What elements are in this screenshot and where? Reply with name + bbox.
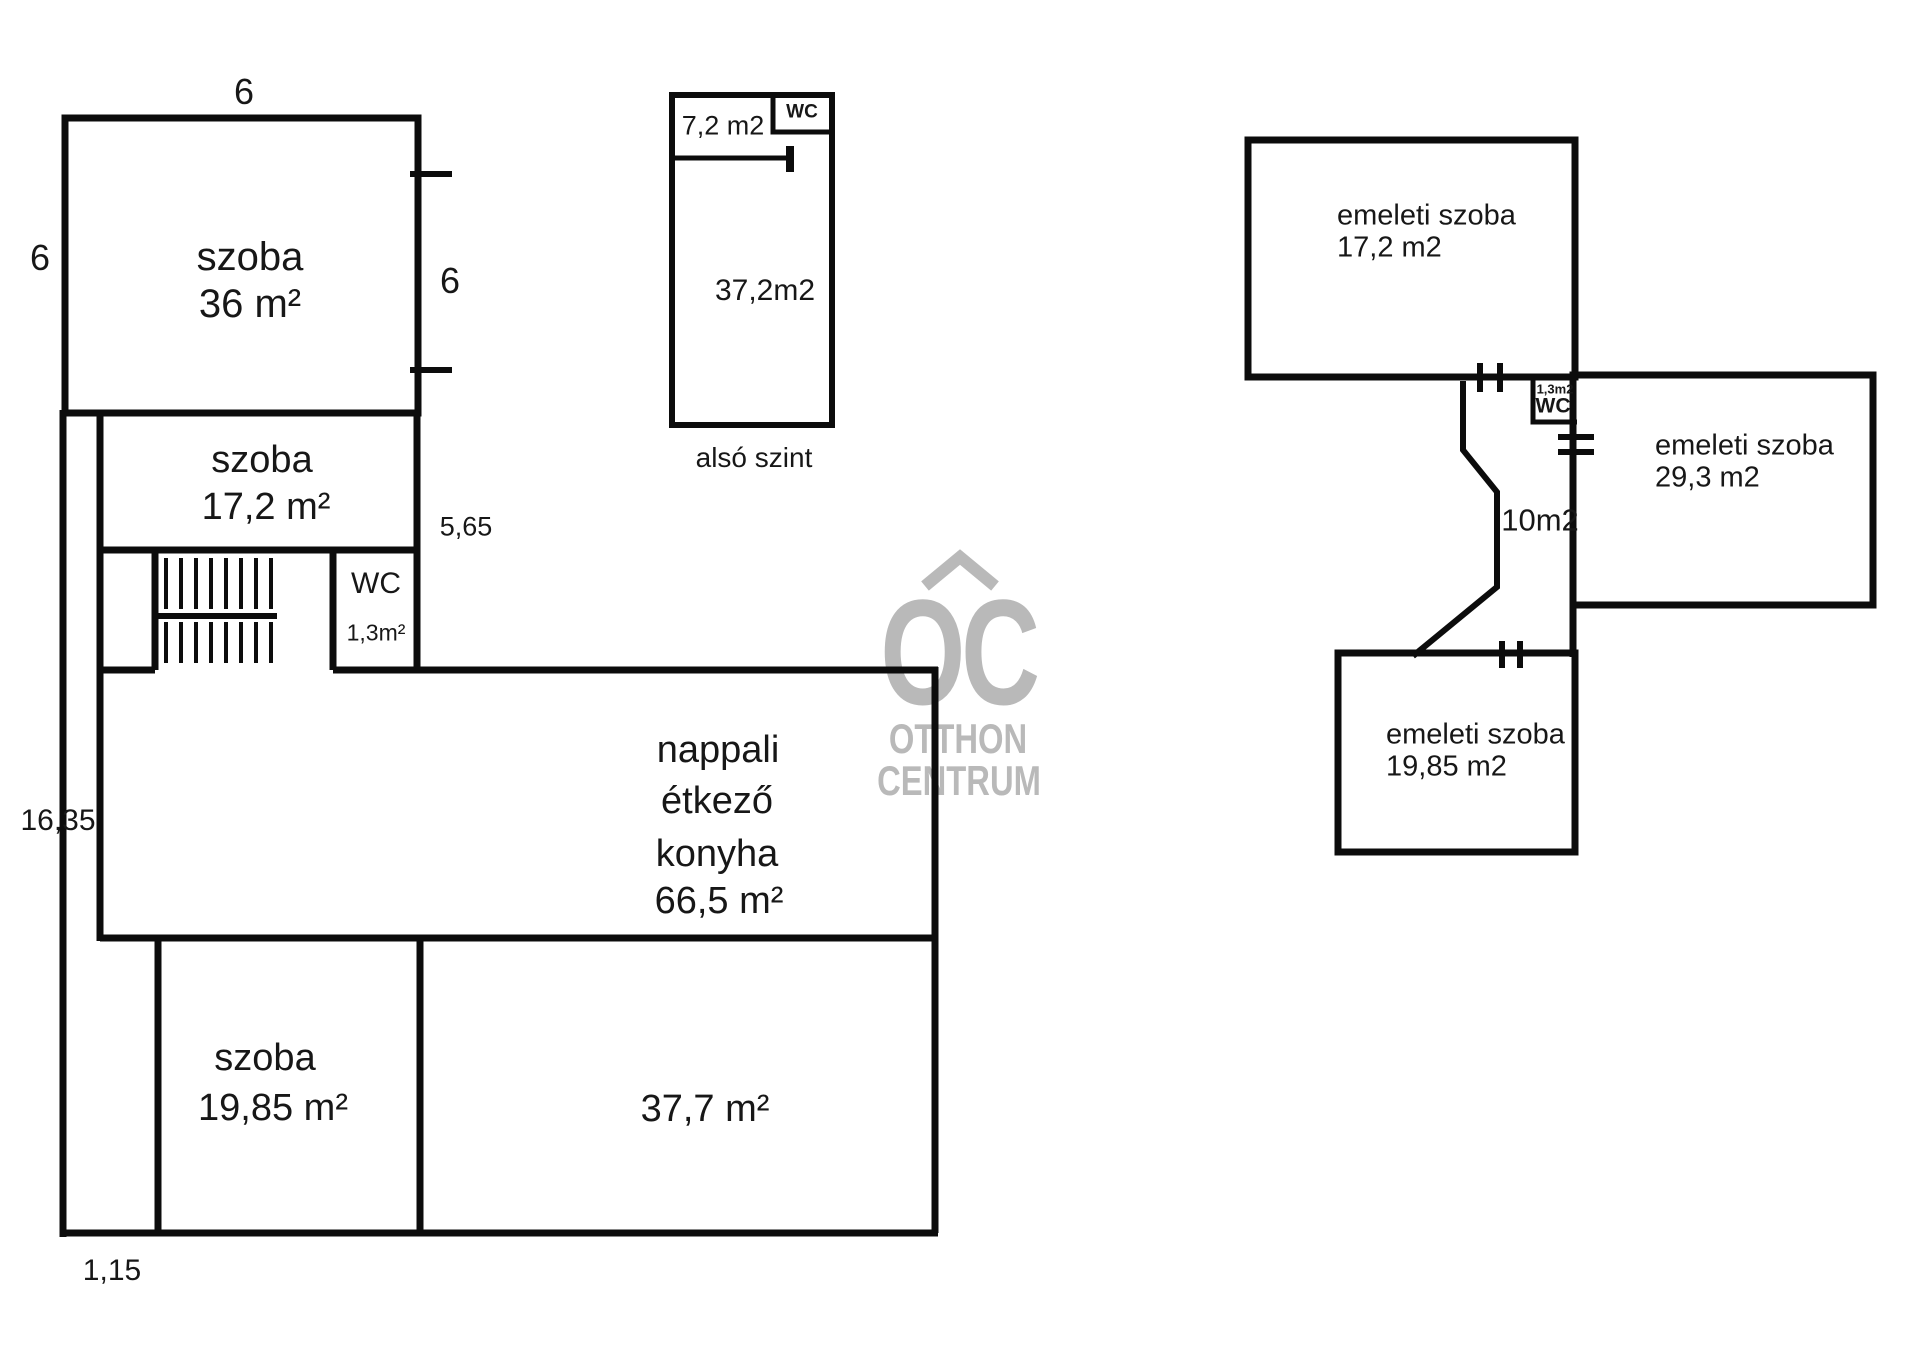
room-label-szoba17-area: 17,2 m² (202, 488, 331, 526)
room-label-szoba19-area: 19,85 m² (198, 1089, 348, 1127)
dimension-left: 6 (30, 240, 50, 276)
room-label-emeleti17-area: 17,2 m2 (1337, 234, 1442, 263)
floorplan-canvas: OC OTTHON CENTRUM (0, 0, 1920, 1348)
also-szint-caption: alsó szint (696, 444, 813, 472)
wall-corridor-left (1413, 381, 1497, 656)
dimension-top: 6 (234, 74, 254, 110)
room-label-emeleti17-name: emeleti szoba (1337, 202, 1516, 231)
room-label-emeleti-wc-name: WC (1536, 396, 1571, 417)
room-label-emeleti29-area: 29,3 m2 (1655, 464, 1760, 493)
room-label-37-area: 37,7 m² (641, 1090, 770, 1128)
room-label-emeleti19-area: 19,85 m2 (1386, 753, 1507, 782)
room-label-nappali-line2: étkező (661, 782, 773, 820)
dimension-mid: 5,65 (440, 514, 493, 541)
room-label-szoba36-name: szoba (197, 237, 304, 277)
stairs-lower-flight (166, 622, 271, 663)
wall-also-szint-outline (672, 95, 832, 425)
room-label-wc-name: WC (351, 569, 401, 599)
also-szint-room372-label: 37,2m2 (715, 276, 815, 306)
dimension-right: 6 (440, 263, 460, 299)
room-label-nappali-area: 66,5 m² (655, 882, 784, 920)
room-label-nappali-line3: konyha (656, 835, 779, 873)
stairs-upper-flight (166, 558, 271, 609)
room-label-szoba17-name: szoba (211, 441, 312, 479)
dimension-height: 16,35 (20, 806, 95, 836)
room-label-szoba19-name: szoba (214, 1039, 315, 1077)
also-szint-walls (672, 95, 832, 425)
room-label-szoba36-area: 36 m² (199, 284, 301, 324)
also-szint-wc-label: WC (786, 103, 818, 122)
room-label-emeleti29-name: emeleti szoba (1655, 432, 1834, 461)
dimension-bottom: 1,15 (83, 1256, 141, 1286)
room-label-corridor-area: 10m2 (1501, 505, 1579, 536)
floorplan-walls (0, 0, 1920, 1348)
room-label-nappali-line1: nappali (657, 731, 780, 769)
room-label-wc-area: 1,3m² (347, 622, 406, 645)
room-label-emeleti19-name: emeleti szoba (1386, 721, 1565, 750)
also-szint-room72-label: 7,2 m2 (682, 113, 765, 140)
stairs (158, 558, 277, 663)
